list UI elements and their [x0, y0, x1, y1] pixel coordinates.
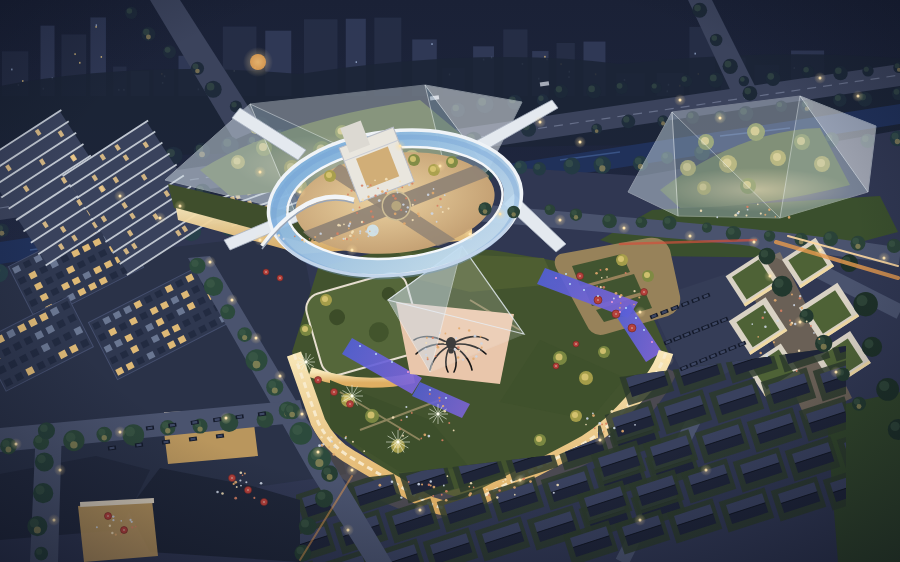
rendering-stage — [0, 0, 900, 562]
scene-canvas — [0, 0, 900, 562]
vignette-overlay — [0, 0, 900, 562]
